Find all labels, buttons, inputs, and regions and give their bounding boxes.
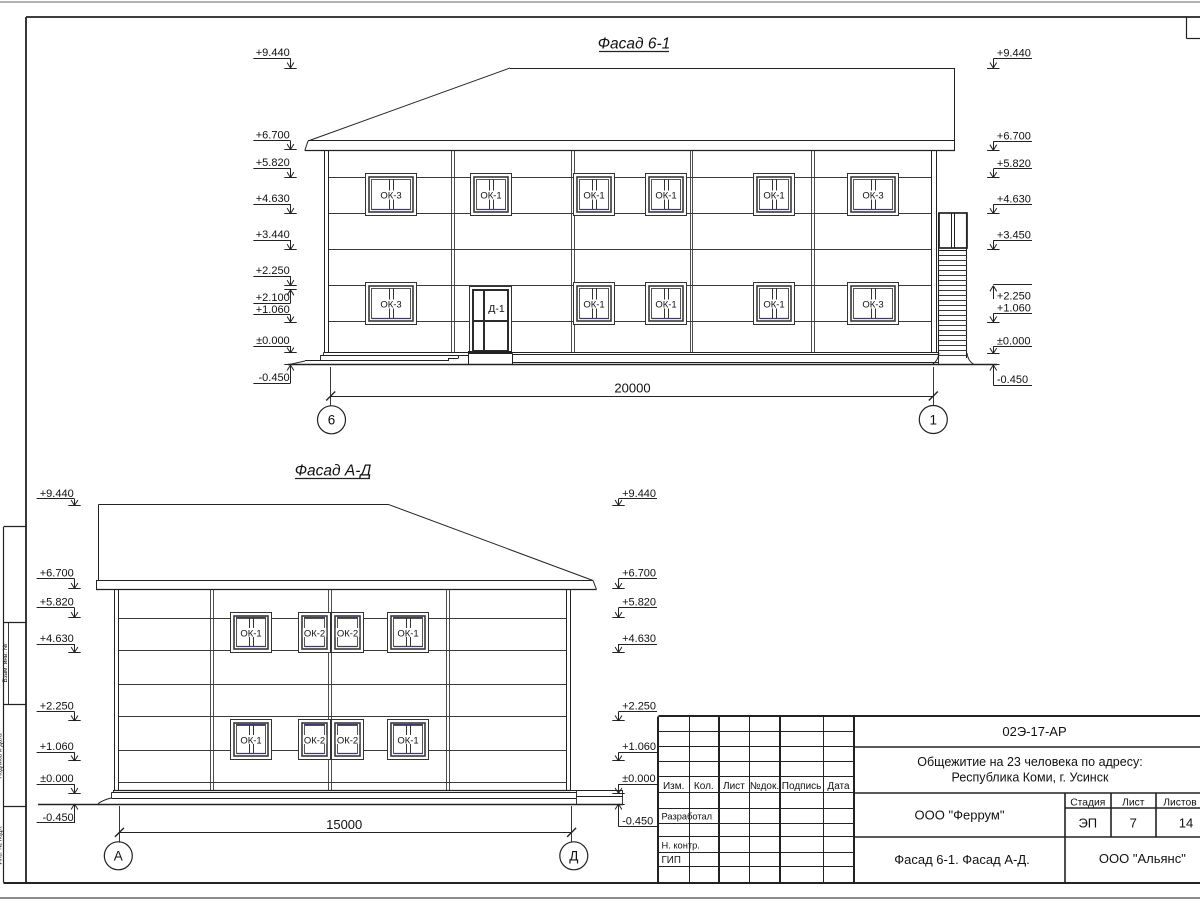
svg-text:±0.000: ±0.000 <box>40 773 74 785</box>
svg-text:Лист: Лист <box>723 781 745 792</box>
svg-text:±0.000: ±0.000 <box>622 773 656 785</box>
svg-text:Н. контр.: Н. контр. <box>662 841 700 851</box>
svg-text:Общежитие на 23 человека по ад: Общежитие на 23 человека по адресу: <box>917 755 1142 769</box>
svg-text:+6.700: +6.700 <box>40 568 74 580</box>
svg-text:ГИП: ГИП <box>662 855 681 866</box>
svg-text:+6.700: +6.700 <box>622 568 656 580</box>
svg-text:+1.060: +1.060 <box>997 302 1031 314</box>
svg-text:Изм.: Изм. <box>663 781 684 792</box>
svg-text:+5.820: +5.820 <box>40 597 74 609</box>
svg-text:+5.820: +5.820 <box>622 597 656 609</box>
svg-text:+2.250: +2.250 <box>256 265 290 277</box>
svg-text:ООО "Альянс": ООО "Альянс" <box>1099 851 1186 866</box>
svg-text:+2.250: +2.250 <box>997 290 1031 302</box>
svg-text:+4.630: +4.630 <box>997 193 1031 205</box>
svg-text:Подпись: Подпись <box>782 781 822 792</box>
svg-text:-0.450: -0.450 <box>997 374 1028 386</box>
svg-text:+1.060: +1.060 <box>40 741 74 753</box>
svg-text:Д: Д <box>569 849 578 864</box>
svg-text:+6.700: +6.700 <box>256 130 290 142</box>
svg-text:14: 14 <box>1179 816 1193 831</box>
svg-text:Республика Коми, г. Усинск: Республика Коми, г. Усинск <box>952 771 1109 785</box>
svg-text:+2.100: +2.100 <box>256 292 290 304</box>
svg-text:-0.450: -0.450 <box>42 812 73 824</box>
svg-text:+9.440: +9.440 <box>256 47 290 59</box>
svg-text:+1.060: +1.060 <box>256 304 290 316</box>
svg-text:±0.000: ±0.000 <box>997 335 1031 347</box>
svg-text:+2.250: +2.250 <box>622 700 656 712</box>
svg-text:Подпись и дата: Подпись и дата <box>0 733 4 779</box>
svg-text:+2.250: +2.250 <box>40 700 74 712</box>
svg-text:+9.440: +9.440 <box>40 488 74 500</box>
svg-text:+3.450: +3.450 <box>997 229 1031 241</box>
svg-text:±0.000: ±0.000 <box>256 335 290 347</box>
svg-text:15000: 15000 <box>326 817 362 832</box>
svg-text:1: 1 <box>930 412 938 427</box>
svg-text:Фасад 6-1. Фасад А-Д.: Фасад 6-1. Фасад А-Д. <box>894 852 1030 867</box>
svg-text:+3.440: +3.440 <box>256 229 290 241</box>
svg-text:+4.630: +4.630 <box>622 633 656 645</box>
svg-text:Фасад А-Д: Фасад А-Д <box>295 462 372 479</box>
svg-text:+4.630: +4.630 <box>40 633 74 645</box>
svg-text:ООО "Феррум": ООО "Феррум" <box>915 808 1005 823</box>
svg-text:20000: 20000 <box>614 381 650 396</box>
svg-text:Лист: Лист <box>1122 797 1145 808</box>
svg-text:Дата: Дата <box>827 781 850 792</box>
svg-text:Листов: Листов <box>1163 797 1197 808</box>
svg-text:+9.440: +9.440 <box>622 488 656 500</box>
svg-text:А: А <box>114 849 123 864</box>
svg-text:02Э-17-АР: 02Э-17-АР <box>1002 724 1066 739</box>
svg-text:7: 7 <box>1130 816 1137 831</box>
svg-text:6: 6 <box>328 413 336 428</box>
svg-text:Инв. № подл.: Инв. № подл. <box>0 825 4 864</box>
svg-text:+4.630: +4.630 <box>256 193 290 205</box>
svg-text:№док.: №док. <box>750 781 779 792</box>
svg-text:Кол.: Кол. <box>694 781 714 792</box>
svg-text:Фасад 6-1: Фасад 6-1 <box>598 36 671 53</box>
svg-text:+1.060: +1.060 <box>622 741 656 753</box>
svg-text:Д-1: Д-1 <box>488 303 505 315</box>
svg-text:-0.450: -0.450 <box>258 372 289 384</box>
svg-text:+5.820: +5.820 <box>997 158 1031 170</box>
svg-text:+9.440: +9.440 <box>997 47 1031 59</box>
svg-text:Разработал: Разработал <box>662 811 713 821</box>
svg-text:+6.700: +6.700 <box>997 130 1031 142</box>
svg-text:Стадия: Стадия <box>1070 797 1105 808</box>
svg-text:Взам. инв. №: Взам. инв. № <box>2 643 9 682</box>
svg-text:-0.450: -0.450 <box>622 815 653 827</box>
svg-text:+5.820: +5.820 <box>256 157 290 169</box>
svg-text:ЭП: ЭП <box>1078 816 1097 831</box>
